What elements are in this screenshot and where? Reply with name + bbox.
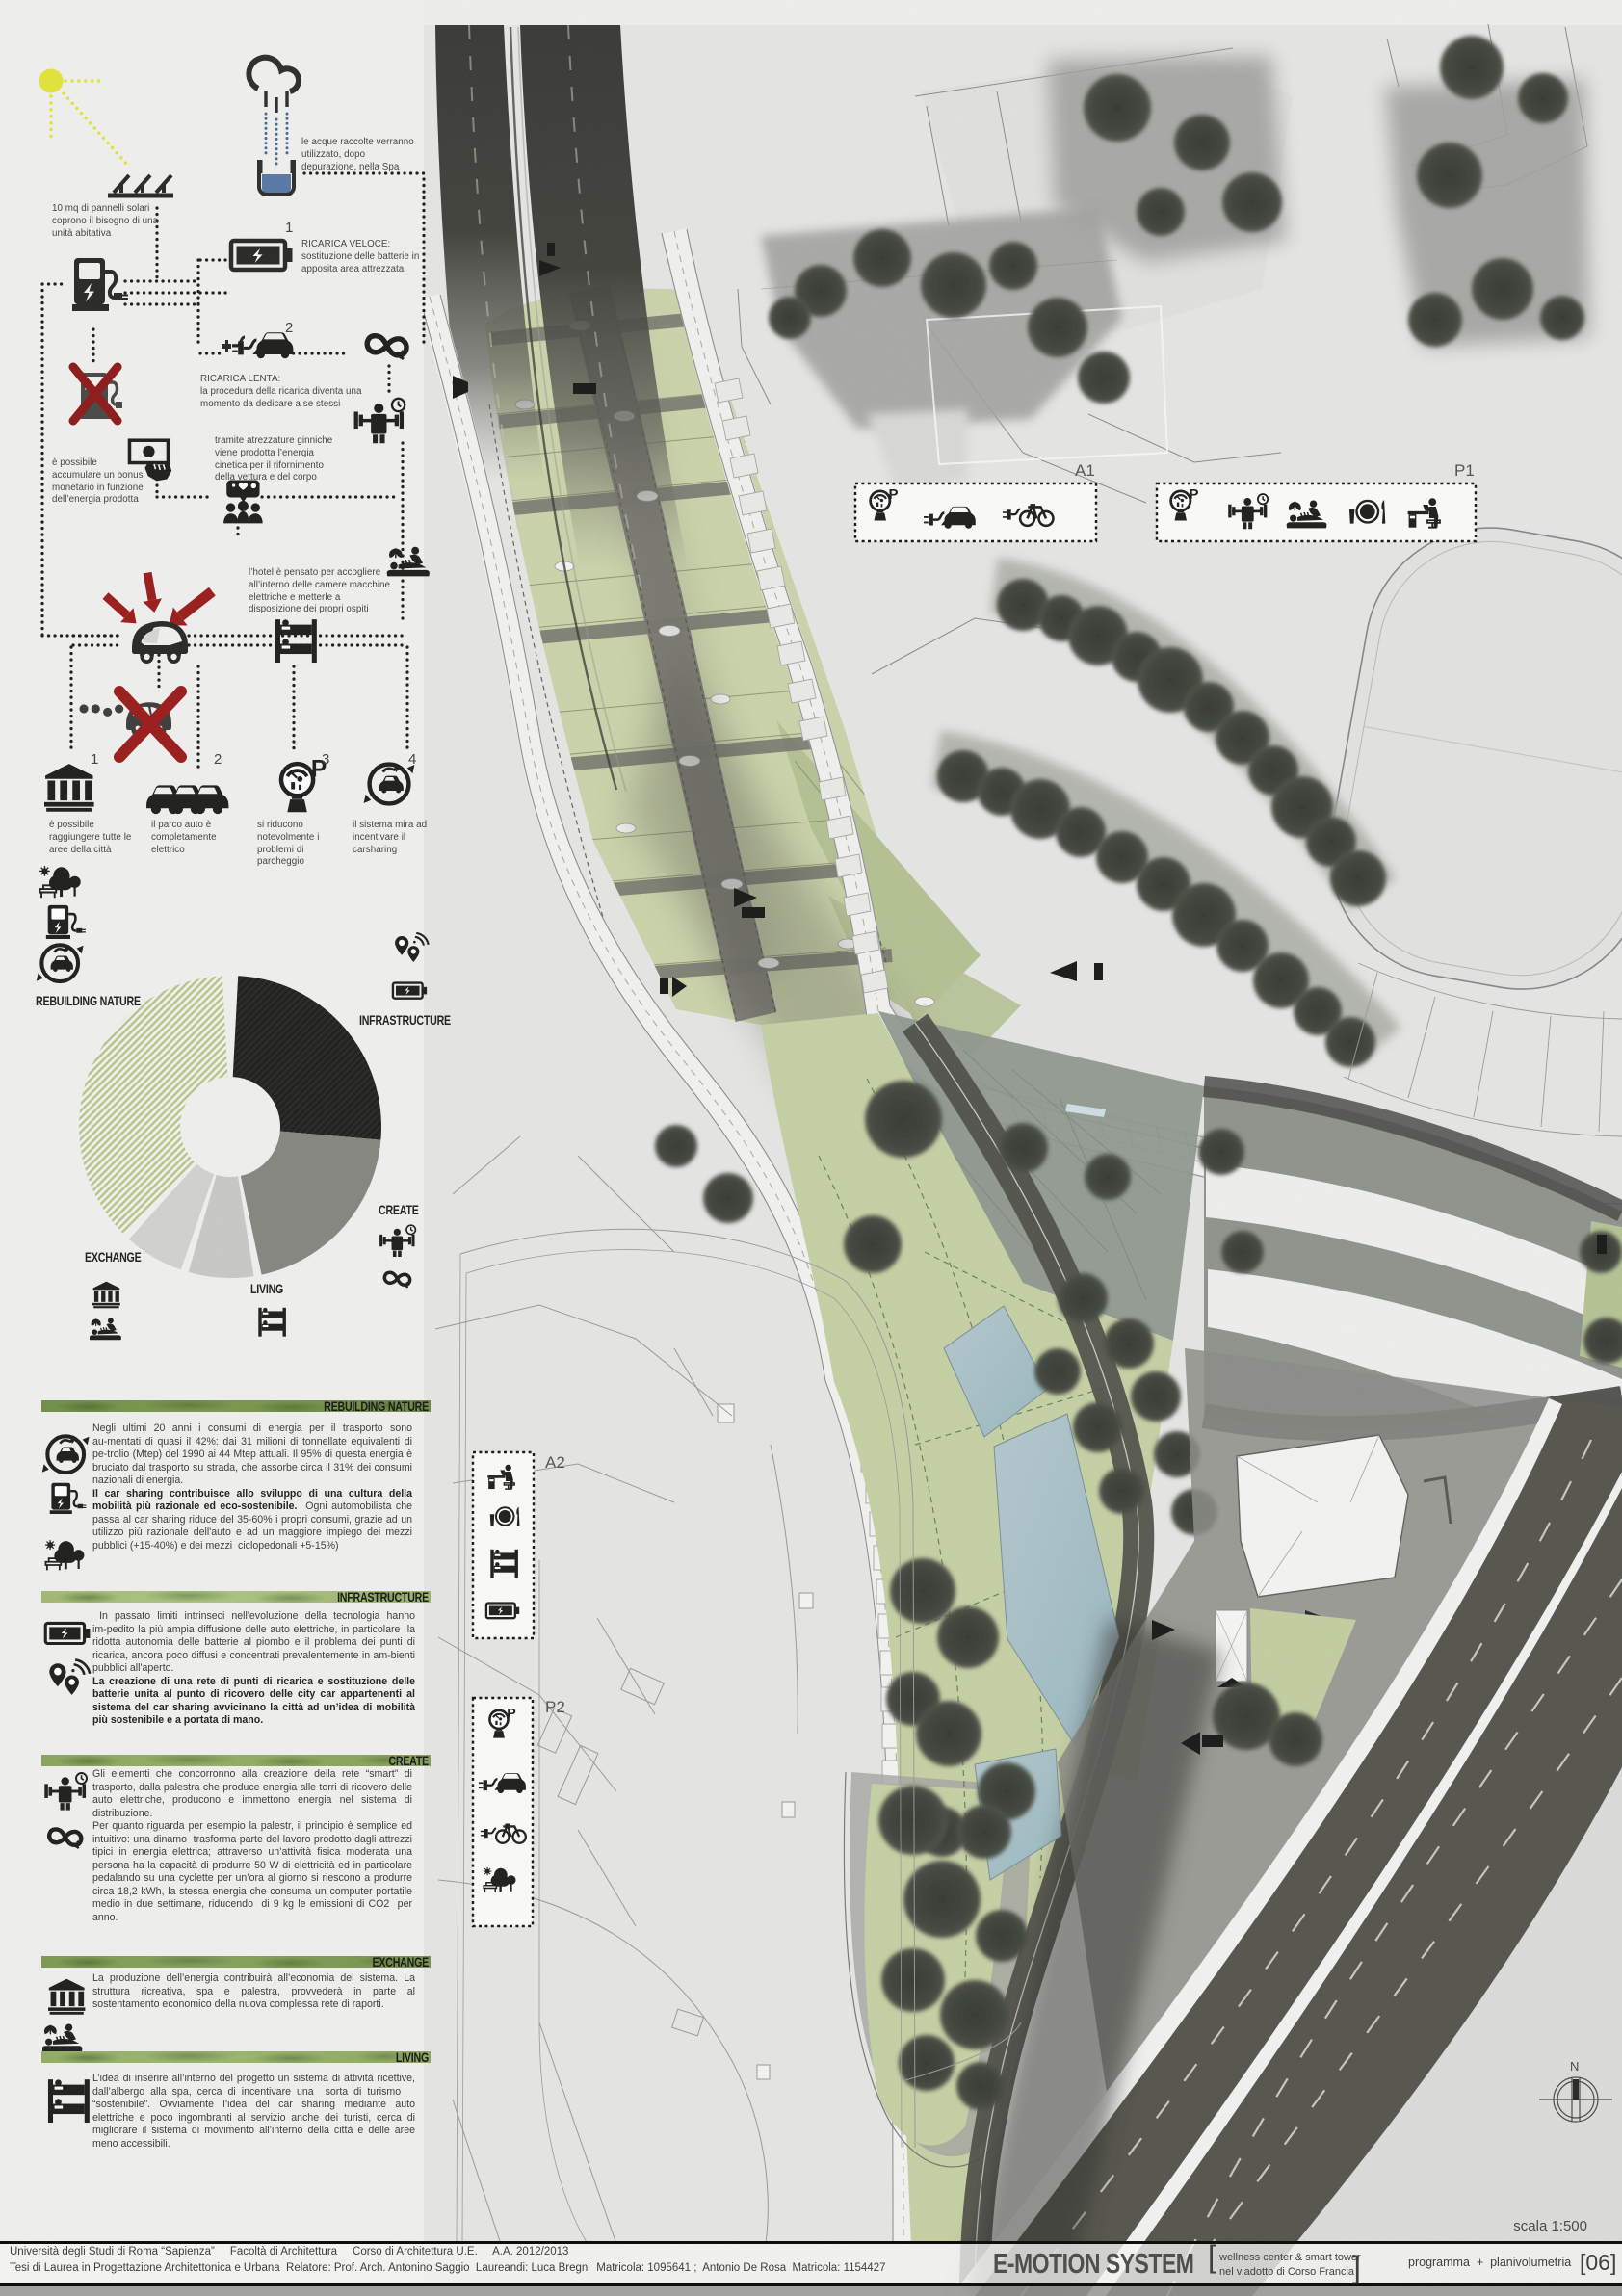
svg-text:scala 1:500: scala 1:500 xyxy=(1513,2218,1587,2234)
svg-text:A2: A2 xyxy=(545,1453,565,1472)
svg-text:P2: P2 xyxy=(545,1698,565,1716)
svg-text:N: N xyxy=(1570,2059,1579,2074)
svg-text:A1: A1 xyxy=(1075,461,1095,480)
svg-text:P1: P1 xyxy=(1454,461,1475,480)
